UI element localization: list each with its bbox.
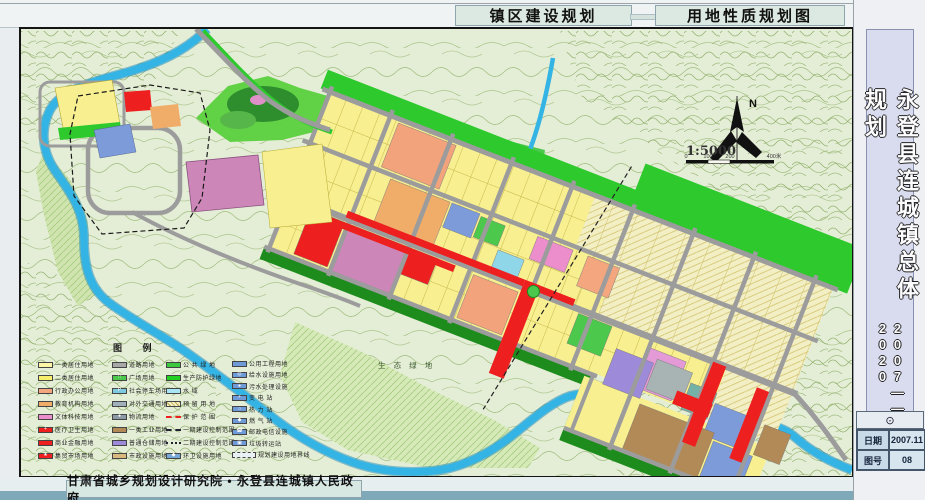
svg-text:400米: 400米	[767, 152, 782, 160]
title-block-table: 日期 2007.11 图号 08	[856, 429, 925, 471]
svg-text:200: 200	[725, 154, 734, 160]
date-value: 2007.11	[889, 430, 925, 450]
sheet-title-left: 镇区建设规划	[455, 5, 632, 26]
top-rule	[0, 3, 925, 4]
map-frame: N1:50000100200400米生 态 绿 地 图 例 一类居住用地二类居住…	[19, 27, 854, 478]
sheet-no-label: 图号	[857, 450, 889, 470]
svg-text:0: 0	[684, 154, 687, 160]
credit-box: 甘肃省城乡规划设计研究院 • 永登县连城镇人民政府	[66, 480, 362, 498]
table-row: 图号 08	[857, 450, 925, 470]
table-row: 日期 2007.11	[857, 430, 925, 450]
svg-text:生 态 绿 地: 生 态 绿 地	[378, 360, 435, 370]
sheet-no-value: 08	[889, 450, 925, 470]
plan-sheet: 镇区建设规划 用地性质规划图 N1:50000100200400米生 态 绿 地…	[0, 0, 925, 500]
stamp-mark: ⊙	[856, 411, 924, 429]
title-connector	[630, 14, 657, 20]
title-column-box: 永登县连城镇总体规划 2007——2020	[866, 29, 914, 455]
drawing-title-vertical: 永登县连城镇总体规划	[858, 88, 922, 313]
svg-text:100: 100	[703, 154, 712, 160]
planning-map-canvas: N1:50000100200400米生 态 绿 地	[21, 29, 852, 476]
title-column: 永登县连城镇总体规划 2007——2020 ⊙ 日期 2007.11 图号 08	[853, 0, 925, 500]
sheet-title-right: 用地性质规划图	[655, 5, 845, 26]
date-label: 日期	[857, 430, 889, 450]
svg-text:N: N	[749, 98, 757, 110]
